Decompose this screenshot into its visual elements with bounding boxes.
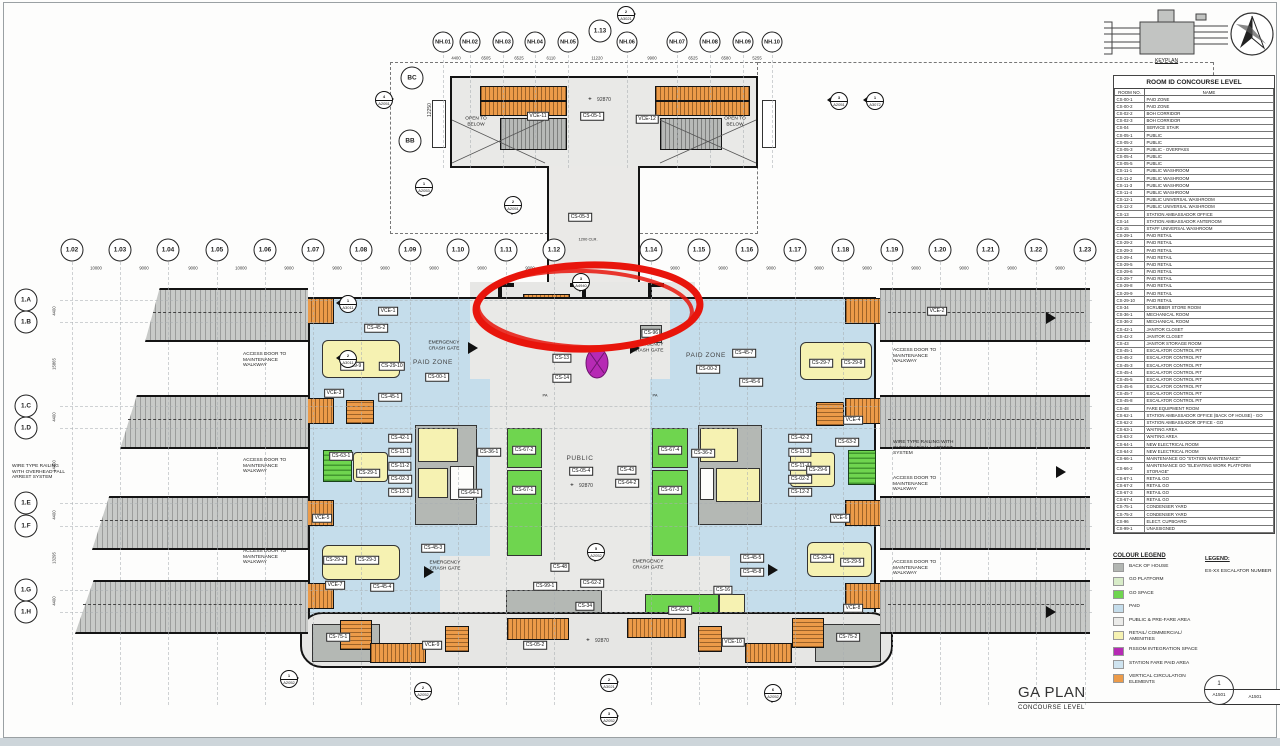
room-table-row: CS-45-4ESCALATOR CONTROL PIT xyxy=(1115,369,1274,376)
room-table-row: CS-42-2JANITOR CLOSET xyxy=(1115,333,1274,340)
room-table-row: CS-14STATION AMBASSADOR ANTEROOM xyxy=(1115,218,1274,225)
platform xyxy=(880,580,1090,634)
room-table-cell: CS-67-3 xyxy=(1115,489,1145,496)
grid-bubble: NH.10 xyxy=(762,32,783,53)
room-table-cell: CS-29-6 xyxy=(1115,268,1145,275)
room-table-row: CS-11-4PUBLIC WASHROOM xyxy=(1115,189,1274,196)
dimension-marker-icon: ⌖ xyxy=(586,638,589,645)
washroom-left xyxy=(418,468,448,498)
grid-dimension: 9000 xyxy=(284,266,293,271)
sheet-bottom-edge xyxy=(0,738,1280,746)
room-table-row: CS-05-5PUBLIC xyxy=(1115,160,1274,167)
room-table-cell: CS-45-4 xyxy=(1115,369,1145,376)
room-label: CS-29-4 xyxy=(810,554,834,563)
section-marker: 2A2051 xyxy=(503,195,521,213)
room-table-cell: PAID ZONE xyxy=(1145,103,1274,110)
room-table-cell: ESCALATOR CONTROL PIT xyxy=(1145,383,1274,390)
grid-bubble: 1.03 xyxy=(109,239,132,262)
grid-bubble: 1.20 xyxy=(929,239,952,262)
grid-line xyxy=(60,300,1092,301)
plan-note: EMERGENCY CRASH GATE xyxy=(633,342,664,353)
colour-swatch xyxy=(1113,590,1124,599)
colour-legend-item: STATION FARE PAID AREA xyxy=(1113,660,1208,669)
room-table-row: CS-29-2PAID RETAIL xyxy=(1115,239,1274,246)
keyplan-label: KEYPLAN xyxy=(1155,58,1178,64)
grid-line xyxy=(60,612,1092,613)
grid-dimension: 6505 xyxy=(481,56,490,61)
room-table-row: CS-00-2PAID ZONE xyxy=(1115,103,1274,110)
grid-bubble: 1.17 xyxy=(784,239,807,262)
room-label: CS-64-2 xyxy=(615,479,639,488)
room-table-row: CS-36-2MECHANICAL ROOM xyxy=(1115,319,1274,326)
room-table-row: CS-29-1PAID RETAIL xyxy=(1115,232,1274,239)
room-label: CS-75-1 xyxy=(326,633,350,642)
section-marker-bubble: 3A2051 xyxy=(830,92,848,110)
grid-bubble: 1.G xyxy=(15,579,38,602)
plan-note: EMERGENCY CRASH GATE xyxy=(430,560,461,571)
room-table-cell: CS-29-7 xyxy=(1115,275,1145,282)
grid-bubble: 1.13 xyxy=(589,20,612,43)
waiting-area xyxy=(848,450,876,485)
room-table-cell: MECHANICAL ROOM xyxy=(1145,319,1274,326)
room-table-cell: CS-42-1 xyxy=(1115,326,1145,333)
grid-bubble: 1.06 xyxy=(254,239,277,262)
stair-bank xyxy=(660,118,722,150)
room-label: CS-11-1 xyxy=(388,448,411,457)
room-table-row: CS-11-1PUBLIC WASHROOM xyxy=(1115,168,1274,175)
stair-bank xyxy=(500,118,567,150)
room-table-cell: CS-45-7 xyxy=(1115,390,1145,397)
room-table-cell: ESCALATOR CONTROL PIT xyxy=(1145,347,1274,354)
room-label: CS-45-2 xyxy=(364,324,388,333)
room-table-row: CS-45-1ESCALATOR CONTROL PIT xyxy=(1115,347,1274,354)
colour-legend-item: RETAIL/ COMMERCIAL/ AMENITIES xyxy=(1113,631,1208,643)
room-table-cell: RETAIL GO xyxy=(1145,482,1274,489)
dimension-text: 92870 xyxy=(597,97,611,103)
room-table-row: CS-00-1PAID ZONE xyxy=(1115,96,1274,103)
grid-bubble: BC xyxy=(401,67,424,90)
room-table-cell: PAID RETAIL xyxy=(1145,254,1274,261)
escalator-bank xyxy=(480,86,567,101)
room-table-cell: CS-36-2 xyxy=(1115,319,1145,326)
room-label: VCE-5 xyxy=(312,514,332,523)
room-label: CS-36-2 xyxy=(691,449,715,458)
room-table-cell: CS-14 xyxy=(1115,218,1145,225)
section-marker: 1A2052 xyxy=(279,669,297,687)
room-table-row: CS-62-2STATION AMBASSADOR OFFICE - GO xyxy=(1115,419,1274,426)
room-table-cell: STATION AMBASSADOR OFFICE (BACK OF HOUSE… xyxy=(1145,412,1274,419)
room-label: CS-42-1 xyxy=(388,434,412,443)
colour-legend-item: GO SPACE xyxy=(1113,590,1208,599)
colour-legend-label: STATION FARE PAID AREA xyxy=(1129,660,1189,666)
room-table-row: CS-66-2MAINTENANCE GO "ELEVATING WORK PL… xyxy=(1115,462,1274,475)
room-table-cell: NEW ELECTRICAL ROOM xyxy=(1145,448,1274,455)
section-marker-bubble: 5A2052 xyxy=(587,543,605,561)
colour-legend-item: GO PLATFORM xyxy=(1113,577,1208,586)
dimension-text: 92870 xyxy=(595,638,609,644)
grid-dimension: 9000 xyxy=(959,266,968,271)
legend: LEGEND: ES-XX ESCALATOR NUMBER xyxy=(1205,556,1275,574)
platform-centerline xyxy=(153,312,302,313)
section-marker-bubble: 3A2052 xyxy=(600,708,618,726)
colour-swatch xyxy=(1113,604,1124,613)
room-table-cell: WAITING AREA xyxy=(1145,426,1274,433)
room-table-row: CS-45-6ESCALATOR CONTROL PIT xyxy=(1115,383,1274,390)
room-table-cell: CS-62-1 xyxy=(1115,412,1145,419)
room-table-cell: CS-42-2 xyxy=(1115,333,1145,340)
room-label: CS-29-10 xyxy=(379,362,405,371)
grid-bubble: 1.11 xyxy=(495,239,518,262)
grid-line xyxy=(627,50,628,168)
legend-title: LEGEND: xyxy=(1205,556,1275,562)
plan-note: PAID ZONE xyxy=(686,352,726,360)
grid-bubble: 1.12 xyxy=(543,239,566,262)
grid-dimension: 6525 xyxy=(514,56,523,61)
room-table-cell: CS-29-9 xyxy=(1115,290,1145,297)
grid-dimension: 4400 xyxy=(52,510,57,519)
grid-line xyxy=(503,50,504,168)
room-label: CS-13 xyxy=(552,354,571,363)
room-table-row: CS-67-4RETAIL GO xyxy=(1115,496,1274,503)
south-stair xyxy=(745,643,792,663)
platform xyxy=(120,395,308,449)
grid-bubble: NH.01 xyxy=(433,32,454,53)
plan-note: WIRE TYPE RAILING WITH OVERHEAD FALL ARR… xyxy=(12,464,65,481)
room-table-cell: JANITOR CLOSET xyxy=(1145,326,1274,333)
room-table-cell: RETAIL GO xyxy=(1145,496,1274,503)
room-label: CS-45-3 xyxy=(421,544,445,553)
room-table-cell: CS-63-2 xyxy=(1115,434,1145,441)
condenser-yard xyxy=(815,624,881,662)
overpass-bridge xyxy=(547,166,640,300)
room-table-row: CS-12-2PUBLIC UNIVERSAL WASHROOM xyxy=(1115,204,1274,211)
room-table-cell: PUBLIC xyxy=(1145,153,1274,160)
room-table-cell: CS-45-3 xyxy=(1115,362,1145,369)
dimension-marker-icon: ⌖ xyxy=(588,97,591,104)
south-escalator xyxy=(627,618,686,638)
room-table-row: CS-02-2BOH CORRIDOR xyxy=(1115,110,1274,117)
room-table-cell: CS-29-2 xyxy=(1115,239,1145,246)
room-table-cell: JANITOR CLOSET xyxy=(1145,333,1274,340)
room-table-row: CS-62-1STATION AMBASSADOR OFFICE (BACK O… xyxy=(1115,412,1274,419)
grid-bubble: 1.09 xyxy=(399,239,422,262)
platform xyxy=(92,496,308,550)
room-table-cell: CS-00-2 xyxy=(1115,103,1145,110)
room-label: CS-16 xyxy=(713,586,732,595)
room-label: CS-12-2 xyxy=(788,488,812,497)
grid-bubble: NH.08 xyxy=(700,32,721,53)
escalator-bank xyxy=(655,101,750,116)
grid-dimension: 10000 xyxy=(235,266,247,271)
platform xyxy=(75,580,308,634)
grid-bubble: 1.19 xyxy=(881,239,904,262)
room-label: CS-67-1 xyxy=(512,486,536,495)
grid-bubble: 1.F xyxy=(15,515,38,538)
room-table-cell: ESCALATOR CONTROL PIT xyxy=(1145,354,1274,361)
room-label: CS-67-4 xyxy=(658,446,682,455)
grid-bubble: NH.02 xyxy=(460,32,481,53)
section-marker-bubble: 1A2052 xyxy=(280,670,298,688)
section-marker-bubble: 3A4940 xyxy=(572,273,590,291)
room-label: CS-12-1 xyxy=(388,488,412,497)
room-table-cell: CONDENSER YARD xyxy=(1145,511,1274,518)
legend-item: ES-XX ESCALATOR NUMBER xyxy=(1205,569,1275,574)
room-table-row: CS-05-1PUBLIC xyxy=(1115,132,1274,139)
grid-line xyxy=(60,428,1092,429)
grid-dimension: 9900 xyxy=(647,56,656,61)
room-table-row: CS-29-8PAID RETAIL xyxy=(1115,283,1274,290)
grid-line xyxy=(443,50,444,168)
colour-legend-item: PAID xyxy=(1113,604,1208,613)
room-label: CS-29-6 xyxy=(806,466,830,475)
room-table-row: CS-29-4PAID RETAIL xyxy=(1115,254,1274,261)
grid-dimension: 10000 xyxy=(90,266,102,271)
room-table-row: CS-29-5PAID RETAIL xyxy=(1115,261,1274,268)
grid-bubble: 1.23 xyxy=(1074,239,1097,262)
room-table-cell: PAID RETAIL xyxy=(1145,261,1274,268)
room-table-cell: CS-29-4 xyxy=(1115,254,1145,261)
dimension-text: 92870 xyxy=(579,483,593,489)
colour-legend-label: PAID xyxy=(1129,604,1140,610)
platform xyxy=(880,288,1090,342)
grid-dimension: 4400 xyxy=(52,596,57,605)
room-table-cell: PAID RETAIL xyxy=(1145,283,1274,290)
section-marker: 5A2052 xyxy=(586,542,604,560)
section-marker: 2A3011 xyxy=(338,349,356,367)
room-table-cell: PUBLIC xyxy=(1145,160,1274,167)
grid-line xyxy=(535,50,536,168)
room-label: CS-67-3 xyxy=(658,486,682,495)
room-label: CS-02-3 xyxy=(388,475,412,484)
colour-legend-item: BACK OF HOUSE xyxy=(1113,563,1208,572)
grid-bubble: 1.E xyxy=(15,492,38,515)
south-stair xyxy=(370,643,426,663)
grid-line xyxy=(60,526,1092,527)
room-table-cell: CS-05-5 xyxy=(1115,160,1145,167)
room-table-row: CS-13STATION AMBASSADOR OFFICE xyxy=(1115,211,1274,218)
room-label: CS-11-3 xyxy=(788,448,811,457)
grid-dimension: 9000 xyxy=(1055,266,1064,271)
room-table-cell: CS-66-2 xyxy=(1115,462,1145,475)
room-table-cell: CS-29-8 xyxy=(1115,283,1145,290)
plan-note: PA xyxy=(542,394,547,399)
grid-bubble: NH.09 xyxy=(733,32,754,53)
grid-line xyxy=(361,262,362,705)
washroom-right xyxy=(716,468,760,502)
colour-swatch xyxy=(1113,674,1124,683)
room-table-cell: CS-96 xyxy=(1115,518,1145,525)
room-label: CS-05-2 xyxy=(523,641,547,650)
colour-swatch xyxy=(1113,631,1124,640)
grid-line xyxy=(988,262,989,705)
grid-dimension: 13295 xyxy=(52,552,57,564)
room-table-row: CS-29-7PAID RETAIL xyxy=(1115,275,1274,282)
section-marker: 1A3011 xyxy=(338,294,356,312)
room-table-cell: PAID RETAIL xyxy=(1145,268,1274,275)
retail-go xyxy=(507,470,542,556)
plan-note: ACCESS DOOR TO MAINTENANCE WALKWAY xyxy=(893,476,936,493)
room-table-cell: CS-45-2 xyxy=(1115,354,1145,361)
washroom-right xyxy=(700,468,714,500)
section-marker: 1A3072 xyxy=(865,91,883,109)
room-label: CS-34 xyxy=(575,602,594,611)
plan-note: EMERGENCY CRASH GATE xyxy=(633,559,664,570)
colour-legend-item: RSSOM INTEGRATION SPACE xyxy=(1113,647,1208,656)
room-table-row: CS-66-1MAINTENANCE GO "STATION MAINTENAN… xyxy=(1115,455,1274,462)
room-table-row: CS-36-1MECHANICAL ROOM xyxy=(1115,311,1274,318)
room-label: CS-45-8 xyxy=(740,568,764,577)
room-table-row: CS-42-1JANITOR CLOSET xyxy=(1115,326,1274,333)
room-table-cell: CS-45-5 xyxy=(1115,376,1145,383)
grid-dimension: 9000 xyxy=(766,266,775,271)
escalator-bank xyxy=(655,86,750,101)
room-label: VCE-6 xyxy=(830,514,850,523)
room-table-cell: CS-05-4 xyxy=(1115,153,1145,160)
platform-centerline xyxy=(888,419,1084,420)
plan-note: ACCESS DOOR TO MAINTENANCE WALKWAY xyxy=(893,348,936,365)
colour-legend-label: GO PLATFORM xyxy=(1129,577,1164,583)
room-table-row: CS-64-1NEW ELECTRICAL ROOM xyxy=(1115,441,1274,448)
room-label: CS-45-4 xyxy=(370,583,394,592)
room-table-cell: ESCALATOR CONTROL PIT xyxy=(1145,362,1274,369)
grid-line xyxy=(217,262,218,705)
room-table-row: CS-05-4PUBLIC xyxy=(1115,153,1274,160)
room-table-row: CS-05-3PUBLIC - OVERPASS xyxy=(1115,146,1274,153)
south-lift xyxy=(792,618,824,648)
room-table-row: CS-63-1WAITING AREA xyxy=(1115,426,1274,433)
room-table-cell: CS-02-2 xyxy=(1115,110,1145,117)
room-table-row: CS-12-1PUBLIC UNIVERSAL WASHROOM xyxy=(1115,196,1274,203)
section-marker-bubble: 2A3011 xyxy=(339,350,357,368)
grid-dimension: 9000 xyxy=(525,266,534,271)
grid-dimension: 9000 xyxy=(911,266,920,271)
room-label: VCE-2 xyxy=(927,307,947,316)
room-table-cell: STATION AMBASSADOR ANTEROOM xyxy=(1145,218,1274,225)
room-table-cell: ESCALATOR CONTROL PIT xyxy=(1145,398,1274,405)
section-marker: 6A2052 xyxy=(763,683,781,701)
room-label: CS-29-8 xyxy=(841,359,865,368)
section-marker: 4A2051 xyxy=(374,90,392,108)
room-table-row: CS-45-7ESCALATOR CONTROL PIT xyxy=(1115,390,1274,397)
grid-dimension: 4400 xyxy=(52,306,57,315)
grid-line xyxy=(747,262,748,705)
detail-bubble: 1 A1501 xyxy=(1204,675,1234,705)
room-table-cell: RETAIL GO xyxy=(1145,475,1274,482)
grid-line xyxy=(699,262,700,705)
grid-dimension: 9000 xyxy=(188,266,197,271)
room-table-cell: STAFF UNIVERSAL WASHROOM xyxy=(1145,225,1274,232)
room-label: CS-67-2 xyxy=(512,446,536,455)
room-table-cell: ESCALATOR CONTROL PIT xyxy=(1145,369,1274,376)
room-label: CS-48 xyxy=(550,563,569,572)
section-marker: 2A3021 xyxy=(616,5,634,23)
platform-centerline xyxy=(83,604,302,605)
room-table-row: CS-34SCRUBBER STORE ROOM xyxy=(1115,304,1274,311)
grid-dimension: 9000 xyxy=(670,266,679,271)
colour-legend-label: GO SPACE xyxy=(1129,590,1154,596)
grid-bubble: BB xyxy=(399,130,422,153)
plan-note: ACCESS DOOR TO MAINTENANCE WALKWAY xyxy=(893,560,936,577)
room-table-cell: PUBLIC WASHROOM xyxy=(1145,189,1274,196)
room-table-row: CS-45-5ESCALATOR CONTROL PIT xyxy=(1115,376,1274,383)
colour-swatch xyxy=(1113,577,1124,586)
room-table-cell: STATION AMBASSADOR OFFICE xyxy=(1145,211,1274,218)
room-table-cell: CS-48 xyxy=(1115,405,1145,412)
platform-centerline xyxy=(888,604,1084,605)
room-label: CS-43 xyxy=(617,466,636,475)
grid-bubble: 1.18 xyxy=(832,239,855,262)
room-table-row: CS-29-3PAID RETAIL xyxy=(1115,247,1274,254)
grid-dimension: 6110 xyxy=(546,56,555,61)
grid-line xyxy=(313,262,314,705)
grid-bubble: 1.H xyxy=(15,601,38,624)
room-label: CS-62-2 xyxy=(580,579,604,588)
room-table-row: CS-99-1UNASSIGNED xyxy=(1115,525,1274,532)
room-table-row: CS-29-6PAID RETAIL xyxy=(1115,268,1274,275)
plan-note: PA xyxy=(652,394,657,399)
room-table-cell: PUBLIC UNIVERSAL WASHROOM xyxy=(1145,196,1274,203)
room-table-cell: PUBLIC xyxy=(1145,139,1274,146)
room-table-cell: PAID RETAIL xyxy=(1145,275,1274,282)
room-label: CS-11-2 xyxy=(388,462,411,471)
room-table-cell: FARE EQUIPMENT ROOM xyxy=(1145,405,1274,412)
colour-legend-label: RSSOM INTEGRATION SPACE xyxy=(1129,647,1198,653)
room-table-cell: CS-99-1 xyxy=(1115,525,1145,532)
room-label: VCE-12 xyxy=(636,115,659,124)
room-table-cell: PAID ZONE xyxy=(1145,96,1274,103)
grid-dimension: 6580 xyxy=(721,56,730,61)
room-table-cell: WAITING AREA xyxy=(1145,434,1274,441)
section-marker-bubble: 2A3021 xyxy=(617,6,635,24)
room-label: CS-36-1 xyxy=(477,448,501,457)
room-table-cell: MAINTENANCE GO "ELEVATING WORK PLATFORM … xyxy=(1145,462,1274,475)
room-table-cell: CS-02-3 xyxy=(1115,117,1145,124)
room-table-cell: RETAIL GO xyxy=(1145,489,1274,496)
room-label: VCE-1 xyxy=(378,307,398,316)
room-table-cell: CS-45-8 xyxy=(1115,398,1145,405)
grid-line xyxy=(60,590,1092,591)
grid-line xyxy=(470,50,471,168)
plan-note: PAID ZONE xyxy=(413,359,453,367)
plan-note: PUBLIC xyxy=(566,455,593,463)
room-label: CS-42-2 xyxy=(788,434,812,443)
room-table-cell: CS-67-2 xyxy=(1115,482,1145,489)
room-label: VCE-4 xyxy=(843,416,863,425)
room-table-cell: SERVICE STAIR xyxy=(1145,124,1274,131)
section-marker: 3A2052 xyxy=(599,707,617,725)
room-table-cell: CS-43 xyxy=(1115,340,1145,347)
grid-dimension: 9000 xyxy=(332,266,341,271)
room-label: VCE-8 xyxy=(843,604,863,613)
grid-bubble: 1.02 xyxy=(61,239,84,262)
grid-dimension: 9000 xyxy=(718,266,727,271)
retail-go xyxy=(652,470,688,556)
room-table-cell: PUBLIC - OVERPASS xyxy=(1145,146,1274,153)
room-table-cell: MAINTENANCE GO "STATION MAINTENANCE" xyxy=(1145,455,1274,462)
room-table-cell: CS-45-1 xyxy=(1115,347,1145,354)
room-table-cell: CS-12-2 xyxy=(1115,204,1145,211)
grid-dimension: 9000 xyxy=(1007,266,1016,271)
room-table-row: CS-45-8ESCALATOR CONTROL PIT xyxy=(1115,398,1274,405)
room-table-row: CS-05-2PUBLIC xyxy=(1115,139,1274,146)
grid-bubble: 1.22 xyxy=(1025,239,1048,262)
room-table-row: CS-45-3ESCALATOR CONTROL PIT xyxy=(1115,362,1274,369)
washroom-left xyxy=(418,428,458,462)
room-label: VCE-11 xyxy=(527,112,549,121)
grid-line xyxy=(60,322,1092,323)
room-table-cell: CS-11-2 xyxy=(1115,175,1145,182)
room-table-cell: CS-11-3 xyxy=(1115,182,1145,189)
